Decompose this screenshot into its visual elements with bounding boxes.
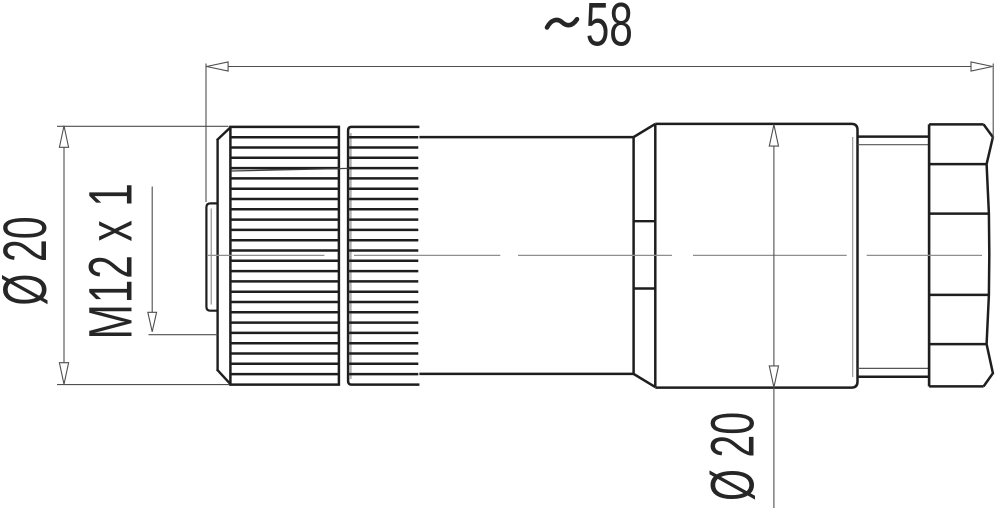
svg-text:Ø 20: Ø 20 (0, 216, 60, 305)
svg-text:58: 58 (586, 0, 633, 59)
svg-text:Ø 20: Ø 20 (699, 412, 768, 501)
svg-text:M12 x 1: M12 x 1 (77, 183, 146, 339)
